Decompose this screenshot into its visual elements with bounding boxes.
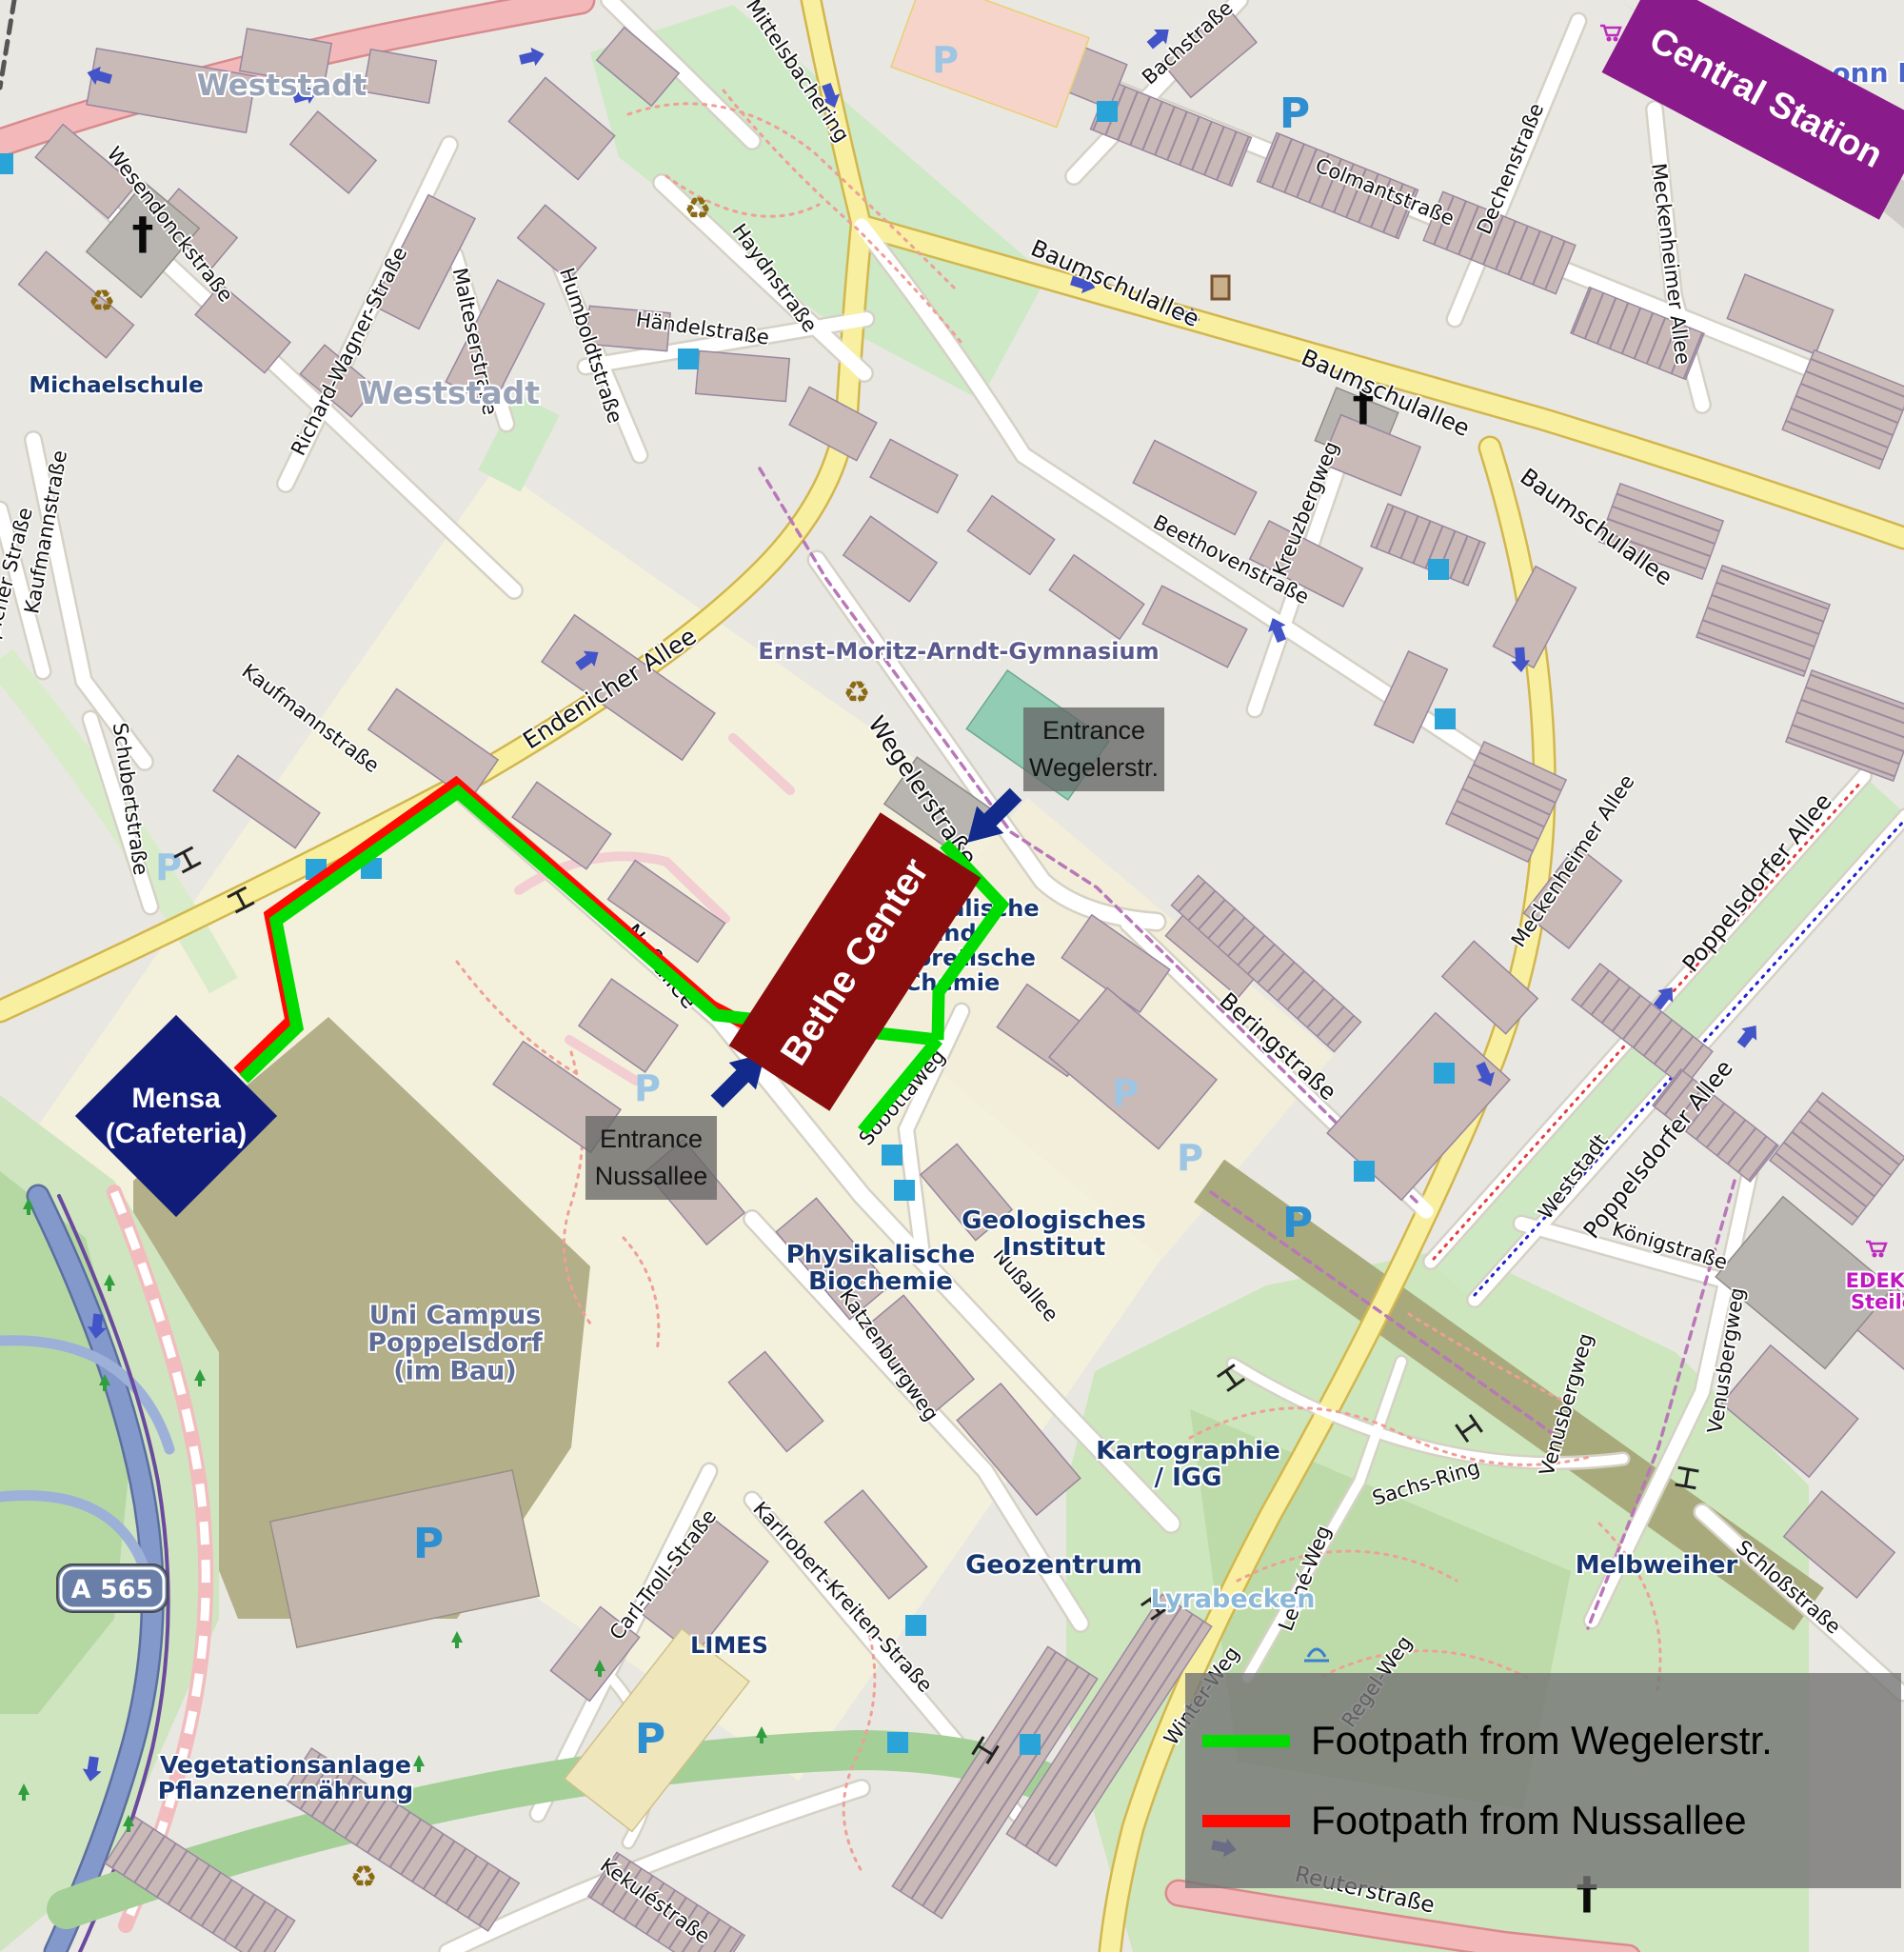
green-footpath-swatch	[1202, 1735, 1290, 1747]
bus-stop-icon	[678, 349, 699, 369]
red-footpath-swatch	[1202, 1815, 1290, 1827]
place-label: Weststadt	[197, 69, 367, 103]
parking-icon: P	[635, 1715, 665, 1763]
bus-stop-icon	[1020, 1734, 1041, 1755]
parking-icon: P	[1279, 90, 1310, 138]
parking-icon: P	[413, 1520, 444, 1568]
cart-wheel	[1873, 1253, 1877, 1258]
bus-stop-icon	[887, 1732, 908, 1753]
recycling-icon: ♻	[843, 674, 871, 710]
map-page: PPPPPPPPP†††♻♻♻♻A 565 WesendonckstraßeRi…	[0, 0, 1904, 1952]
place-label: Michaelschule	[29, 373, 203, 398]
legend-item-wegelerstr: Footpath from Wegelerstr.	[1202, 1718, 1901, 1763]
parking-icon: P	[1282, 1199, 1313, 1247]
bus-stop-icon	[1097, 101, 1118, 122]
bus-stop-icon	[0, 153, 13, 174]
waste-bin-icon	[1212, 276, 1229, 299]
bus-stop-icon	[882, 1145, 902, 1165]
parking-icon: P	[1177, 1137, 1203, 1179]
bus-stop-icon	[1354, 1161, 1375, 1182]
place-label: Melbweiher	[1576, 1551, 1738, 1580]
mensa-callout: Mensa (Cafeteria)	[71, 1011, 281, 1221]
parking-icon: P	[634, 1067, 661, 1109]
place-label: Weststadt	[359, 374, 540, 411]
legend-item-nussallee: Footpath from Nussallee	[1202, 1798, 1901, 1843]
place-label: Geozentrum	[965, 1550, 1142, 1580]
parking-icon: P	[932, 39, 959, 81]
place-label: Ernst-Moritz-Arndt-Gymnasium	[758, 638, 1159, 665]
bus-stop-icon	[905, 1615, 926, 1636]
place-label: Uni CampusPoppelsdorf(im Bau)	[367, 1301, 543, 1385]
entrance-wegelerstr-callout: Entrance Wegelerstr.	[1023, 707, 1164, 791]
bus-stop-icon	[1434, 1063, 1455, 1084]
entrance-nussallee-callout: Entrance Nussallee	[585, 1116, 717, 1200]
parking-icon: P	[155, 847, 182, 888]
motorway-badge: A 565	[57, 1564, 168, 1612]
building	[696, 350, 790, 401]
recycling-icon: ♻	[350, 1859, 378, 1895]
badge-text: A 565	[71, 1575, 154, 1604]
bus-stop-icon	[1428, 559, 1449, 580]
place-label: EDEKASteile	[1846, 1269, 1904, 1314]
cart-wheel	[1607, 37, 1612, 42]
place-label: PhysikalischeBiochemie	[786, 1241, 976, 1296]
bus-stop-icon	[894, 1180, 915, 1201]
map-legend: Footpath from Wegelerstr. Footpath from …	[1185, 1673, 1901, 1888]
cart-wheel	[1879, 1253, 1884, 1258]
recycling-icon: ♻	[89, 283, 116, 319]
place-label: LIMES	[690, 1632, 768, 1659]
place-label: VegetationsanlagePflanzenernährung	[158, 1751, 413, 1804]
bus-stop-icon	[1435, 708, 1456, 729]
map-canvas: PPPPPPPPP†††♻♻♻♻A 565 WesendonckstraßeRi…	[0, 0, 1904, 1952]
parking-icon: P	[1112, 1072, 1139, 1114]
mensa-label: Mensa (Cafeteria)	[106, 1081, 247, 1152]
recycling-icon: ♻	[684, 190, 712, 227]
place-label: Lyrabecken	[1151, 1584, 1316, 1614]
